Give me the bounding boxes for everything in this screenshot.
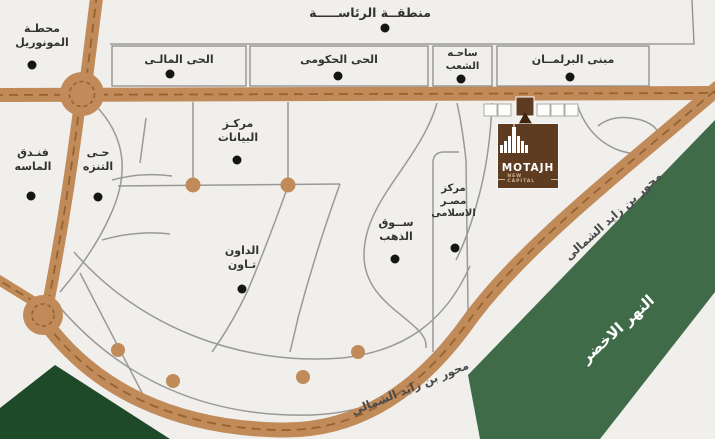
label-government-district: الحى الحكومى bbox=[250, 53, 428, 67]
new-capital-map: محطـة المونوريل منطقــة الرئاســـــة الح… bbox=[0, 0, 715, 439]
label-presidential-area: منطقــة الرئاســـــة bbox=[275, 5, 465, 21]
roundabout-top bbox=[60, 72, 104, 116]
label-data-center: مركـز البيانات bbox=[205, 117, 271, 145]
label-gold-market: ســوق الذهب bbox=[367, 216, 425, 244]
roundabout-left bbox=[23, 295, 63, 335]
label-egypt-islamic-center: مركز مصـر الاسلامى bbox=[426, 183, 481, 221]
label-promenade-district: حـى التنزه bbox=[70, 146, 126, 174]
logo-subtitle: NEW CAPITAL bbox=[498, 175, 558, 184]
label-almasa-hotel: فنـدق الماسه bbox=[2, 146, 64, 174]
label-monorail-station: محطـة المونوريل bbox=[4, 22, 80, 50]
label-parliament-building: مبنى البرلمــان bbox=[497, 53, 649, 67]
label-downtown: الداون تـاون bbox=[212, 244, 272, 272]
logo-name: MOTAJH bbox=[502, 163, 555, 174]
junction-markers bbox=[111, 178, 365, 389]
skyscraper-icon bbox=[498, 124, 532, 153]
label-peoples-square: ساحـه الشعب bbox=[433, 48, 492, 73]
motajh-logo: MOTAJH NEW CAPITAL bbox=[498, 124, 558, 188]
label-financial-district: الحى المالـى bbox=[112, 53, 246, 67]
